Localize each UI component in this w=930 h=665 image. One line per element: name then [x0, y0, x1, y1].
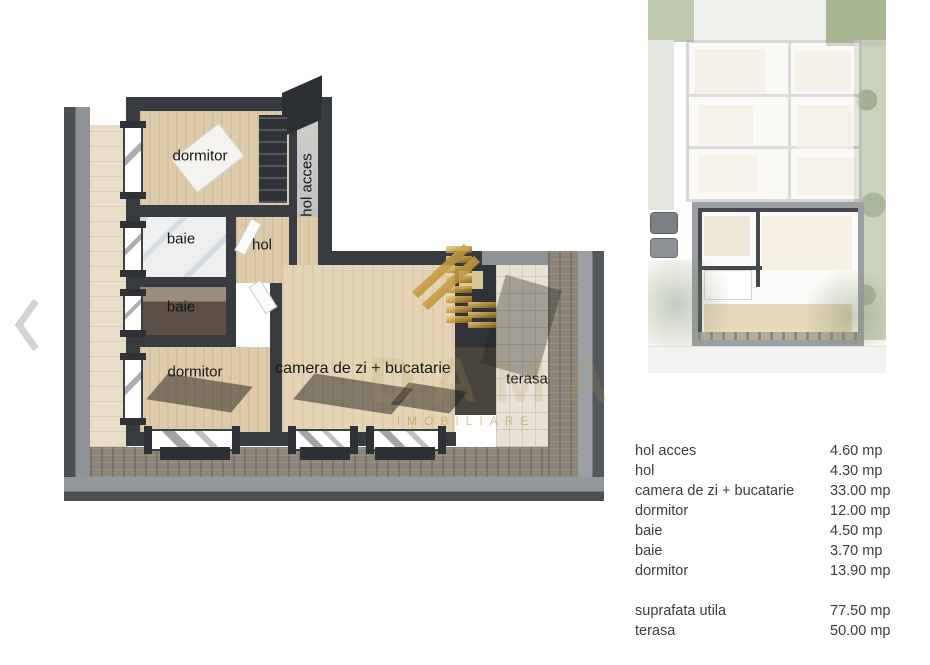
area-value: 12.00 mp	[830, 501, 890, 521]
door-sill-3	[375, 447, 435, 460]
wall-baie-hol	[226, 217, 236, 347]
chevron-left-icon	[12, 294, 42, 356]
areas-table: hol acces 4.60 mp hol 4.30 mp camera de …	[635, 441, 900, 641]
upper-room-5	[699, 155, 757, 193]
room-label-baie-1: baie	[167, 231, 195, 248]
table-row: dormitor 13.90 mp	[635, 561, 900, 581]
main-floor-plan: dormitor hol acces baie hol baie dormito…	[60, 85, 608, 503]
upper-wall-h1	[689, 94, 859, 97]
room-label-hol: hol	[252, 237, 272, 254]
area-label: dormitor	[635, 501, 830, 521]
area-label: camera de zi + bucatarie	[635, 481, 830, 501]
room-label-dormitor-2: dormitor	[167, 364, 222, 381]
window-dormitor1	[123, 125, 143, 195]
area-label: suprafata utila	[635, 601, 830, 621]
area-value: 77.50 mp	[830, 601, 890, 621]
building-upper-faded	[686, 40, 862, 202]
prev-image-button[interactable]	[12, 294, 42, 356]
wall-under-baie2	[140, 335, 236, 347]
area-value: 3.70 mp	[830, 541, 882, 561]
area-value: 50.00 mp	[830, 621, 890, 641]
table-row: terasa 50.00 mp	[635, 621, 900, 641]
road-strip	[648, 346, 886, 373]
table-row: dormitor 12.00 mp	[635, 501, 900, 521]
area-value: 13.90 mp	[830, 561, 890, 581]
room-label-hol-acces: hol acces	[299, 153, 316, 216]
table-row: suprafata utila 77.50 mp	[635, 601, 900, 621]
table-row: camera de zi + bucatarie 33.00 mp	[635, 481, 900, 501]
summary-block: suprafata utila 77.50 mp terasa 50.00 mp	[635, 601, 900, 641]
table-row: baie 3.70 mp	[635, 541, 900, 561]
upper-room-3	[699, 105, 753, 145]
area-value: 4.60 mp	[830, 441, 882, 461]
wall-right-upper	[318, 97, 332, 265]
unit-room-3	[762, 216, 852, 270]
door-sill-2	[300, 447, 350, 460]
upper-wall-v	[788, 43, 791, 199]
wall-under-dormitor1	[140, 205, 297, 217]
wall-between-baie	[140, 277, 236, 287]
upper-room-6	[797, 157, 855, 195]
watermark-brand-text: DAMA	[369, 343, 625, 417]
frame-bottom	[64, 477, 604, 501]
parked-car-2	[650, 238, 678, 258]
driveway-left	[648, 40, 674, 210]
path-top	[694, 0, 826, 40]
window-baie1	[123, 225, 143, 273]
door-sill-1	[160, 447, 230, 460]
grass-top-left	[648, 0, 694, 42]
unit-room-1	[704, 216, 750, 256]
unit-wall-v	[756, 208, 760, 287]
table-row: hol acces 4.60 mp	[635, 441, 900, 461]
area-label: baie	[635, 541, 830, 561]
area-value: 4.30 mp	[830, 461, 882, 481]
area-label: dormitor	[635, 561, 830, 581]
window-baie2	[123, 293, 143, 333]
site-plan-thumbnail	[648, 0, 886, 372]
upper-room-2	[795, 51, 851, 91]
wardrobe-block	[259, 115, 287, 203]
wall-hol-acces	[289, 111, 297, 265]
area-value: 33.00 mp	[830, 481, 890, 501]
unit-wall-top	[698, 208, 858, 212]
floor-plan-sheet: dormitor hol acces baie hol baie dormito…	[0, 0, 930, 665]
area-value: 4.50 mp	[830, 521, 882, 541]
upper-room-4	[797, 105, 853, 149]
frame-left	[64, 107, 90, 501]
table-row: baie 4.50 mp	[635, 521, 900, 541]
area-label: hol acces	[635, 441, 830, 461]
window-dormitor2	[123, 357, 143, 421]
area-label: baie	[635, 521, 830, 541]
area-label: hol	[635, 461, 830, 481]
watermark-subtitle-text: IMOBILIARE	[397, 414, 536, 428]
parked-car-1	[650, 212, 678, 234]
room-label-baie-2: baie	[167, 299, 195, 316]
area-label: terasa	[635, 621, 830, 641]
upper-room-1	[695, 49, 765, 93]
table-row: hol 4.30 mp	[635, 461, 900, 481]
watermark-building-logo	[412, 240, 496, 344]
room-label-dormitor-1: dormitor	[172, 148, 227, 165]
